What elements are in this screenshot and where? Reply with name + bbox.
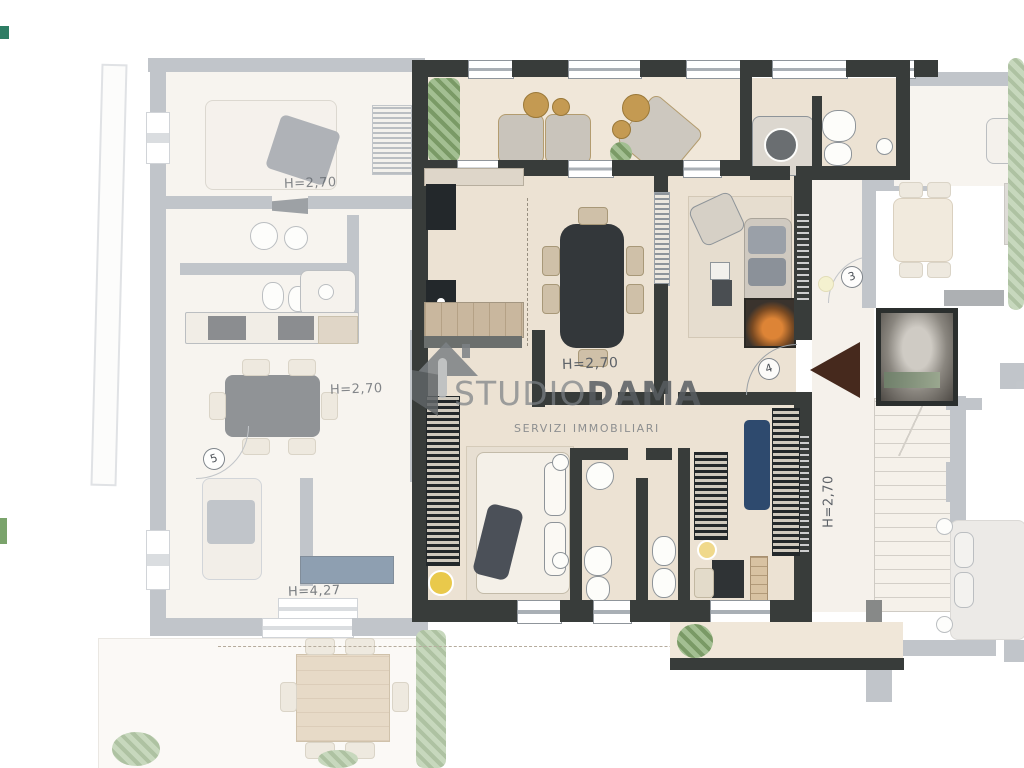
wall [636,478,648,602]
wardrobe [694,452,728,540]
kitchen-counter [424,302,524,338]
edge-mark [0,518,7,544]
chair [542,246,560,276]
height-label: H=4,27 [288,583,341,600]
chair [578,207,608,225]
tv [710,262,730,280]
fireplace [744,298,796,348]
bed-blue [744,420,770,510]
wall [796,166,910,180]
entrance-arrow-icon [810,342,860,398]
terrace-armchair [498,114,544,164]
bidet [586,576,610,602]
french-door [593,600,632,624]
window [710,600,772,624]
wall [570,448,582,602]
wall [424,336,522,348]
radiator [797,212,809,300]
dining-table [560,224,624,348]
media-unit [712,280,732,306]
chair [626,246,644,276]
bedside-lamp [552,454,569,471]
lamp [697,540,717,560]
wall [750,166,790,180]
terrace-hedge [428,78,460,162]
main-apartment [0,0,1024,768]
bathroom-sink [652,536,676,566]
wardrobe [426,396,460,566]
wall [740,60,772,77]
wall [612,160,683,176]
toilet [584,546,612,576]
wall [570,448,628,460]
window [772,60,848,79]
wall [640,60,686,77]
desk-chair [694,568,714,598]
window [686,60,742,79]
wardrobe [772,408,800,556]
wall [678,448,690,602]
wall [654,284,668,394]
sofa-pillow [748,226,786,254]
lamp [428,570,454,596]
height-label: H=2,70 [562,355,619,373]
edge-mark [0,26,9,39]
wall [544,392,602,405]
toilet [822,110,856,142]
window [568,160,614,178]
height-label-vertical: H=2,70 [822,465,837,539]
window [517,600,562,624]
wall [846,60,896,77]
floor-plan: 5 4 3 H=2,70 H=2,70 H=4,27 H=2,70 H=2,70… [0,0,1024,768]
wall [670,658,904,670]
window [568,60,642,79]
balcony-plant [677,624,713,658]
side-table [622,94,650,122]
height-label: H=2,70 [330,381,383,398]
glass-partition [654,192,670,286]
bathroom-sink [586,462,614,490]
wall [740,77,752,176]
side-table [612,120,631,139]
ceiling-change-line [527,198,529,346]
window [683,160,722,178]
shower-drain [876,138,893,155]
wall [914,60,938,77]
window [468,60,514,79]
wall [646,448,672,460]
side-table [552,98,570,116]
sofa-pillow [748,258,786,286]
wall [618,392,664,405]
wall [654,168,668,192]
bathroom-sink [652,568,676,598]
fridge [426,184,456,230]
wall [630,600,710,622]
wall [770,600,812,622]
bidet [824,142,852,166]
bedside-lamp [552,552,569,569]
wall [424,60,468,77]
wall [896,60,910,180]
bath-sink [764,128,798,162]
side-table [523,92,549,118]
chair [542,284,560,314]
wall [560,600,593,622]
wall [512,60,568,77]
height-label: H=2,70 [284,175,337,192]
wall [812,96,822,176]
chair [626,284,644,314]
desk [712,560,744,598]
terrace-armchair [545,114,591,164]
wall [412,600,517,622]
dresser [750,556,768,604]
